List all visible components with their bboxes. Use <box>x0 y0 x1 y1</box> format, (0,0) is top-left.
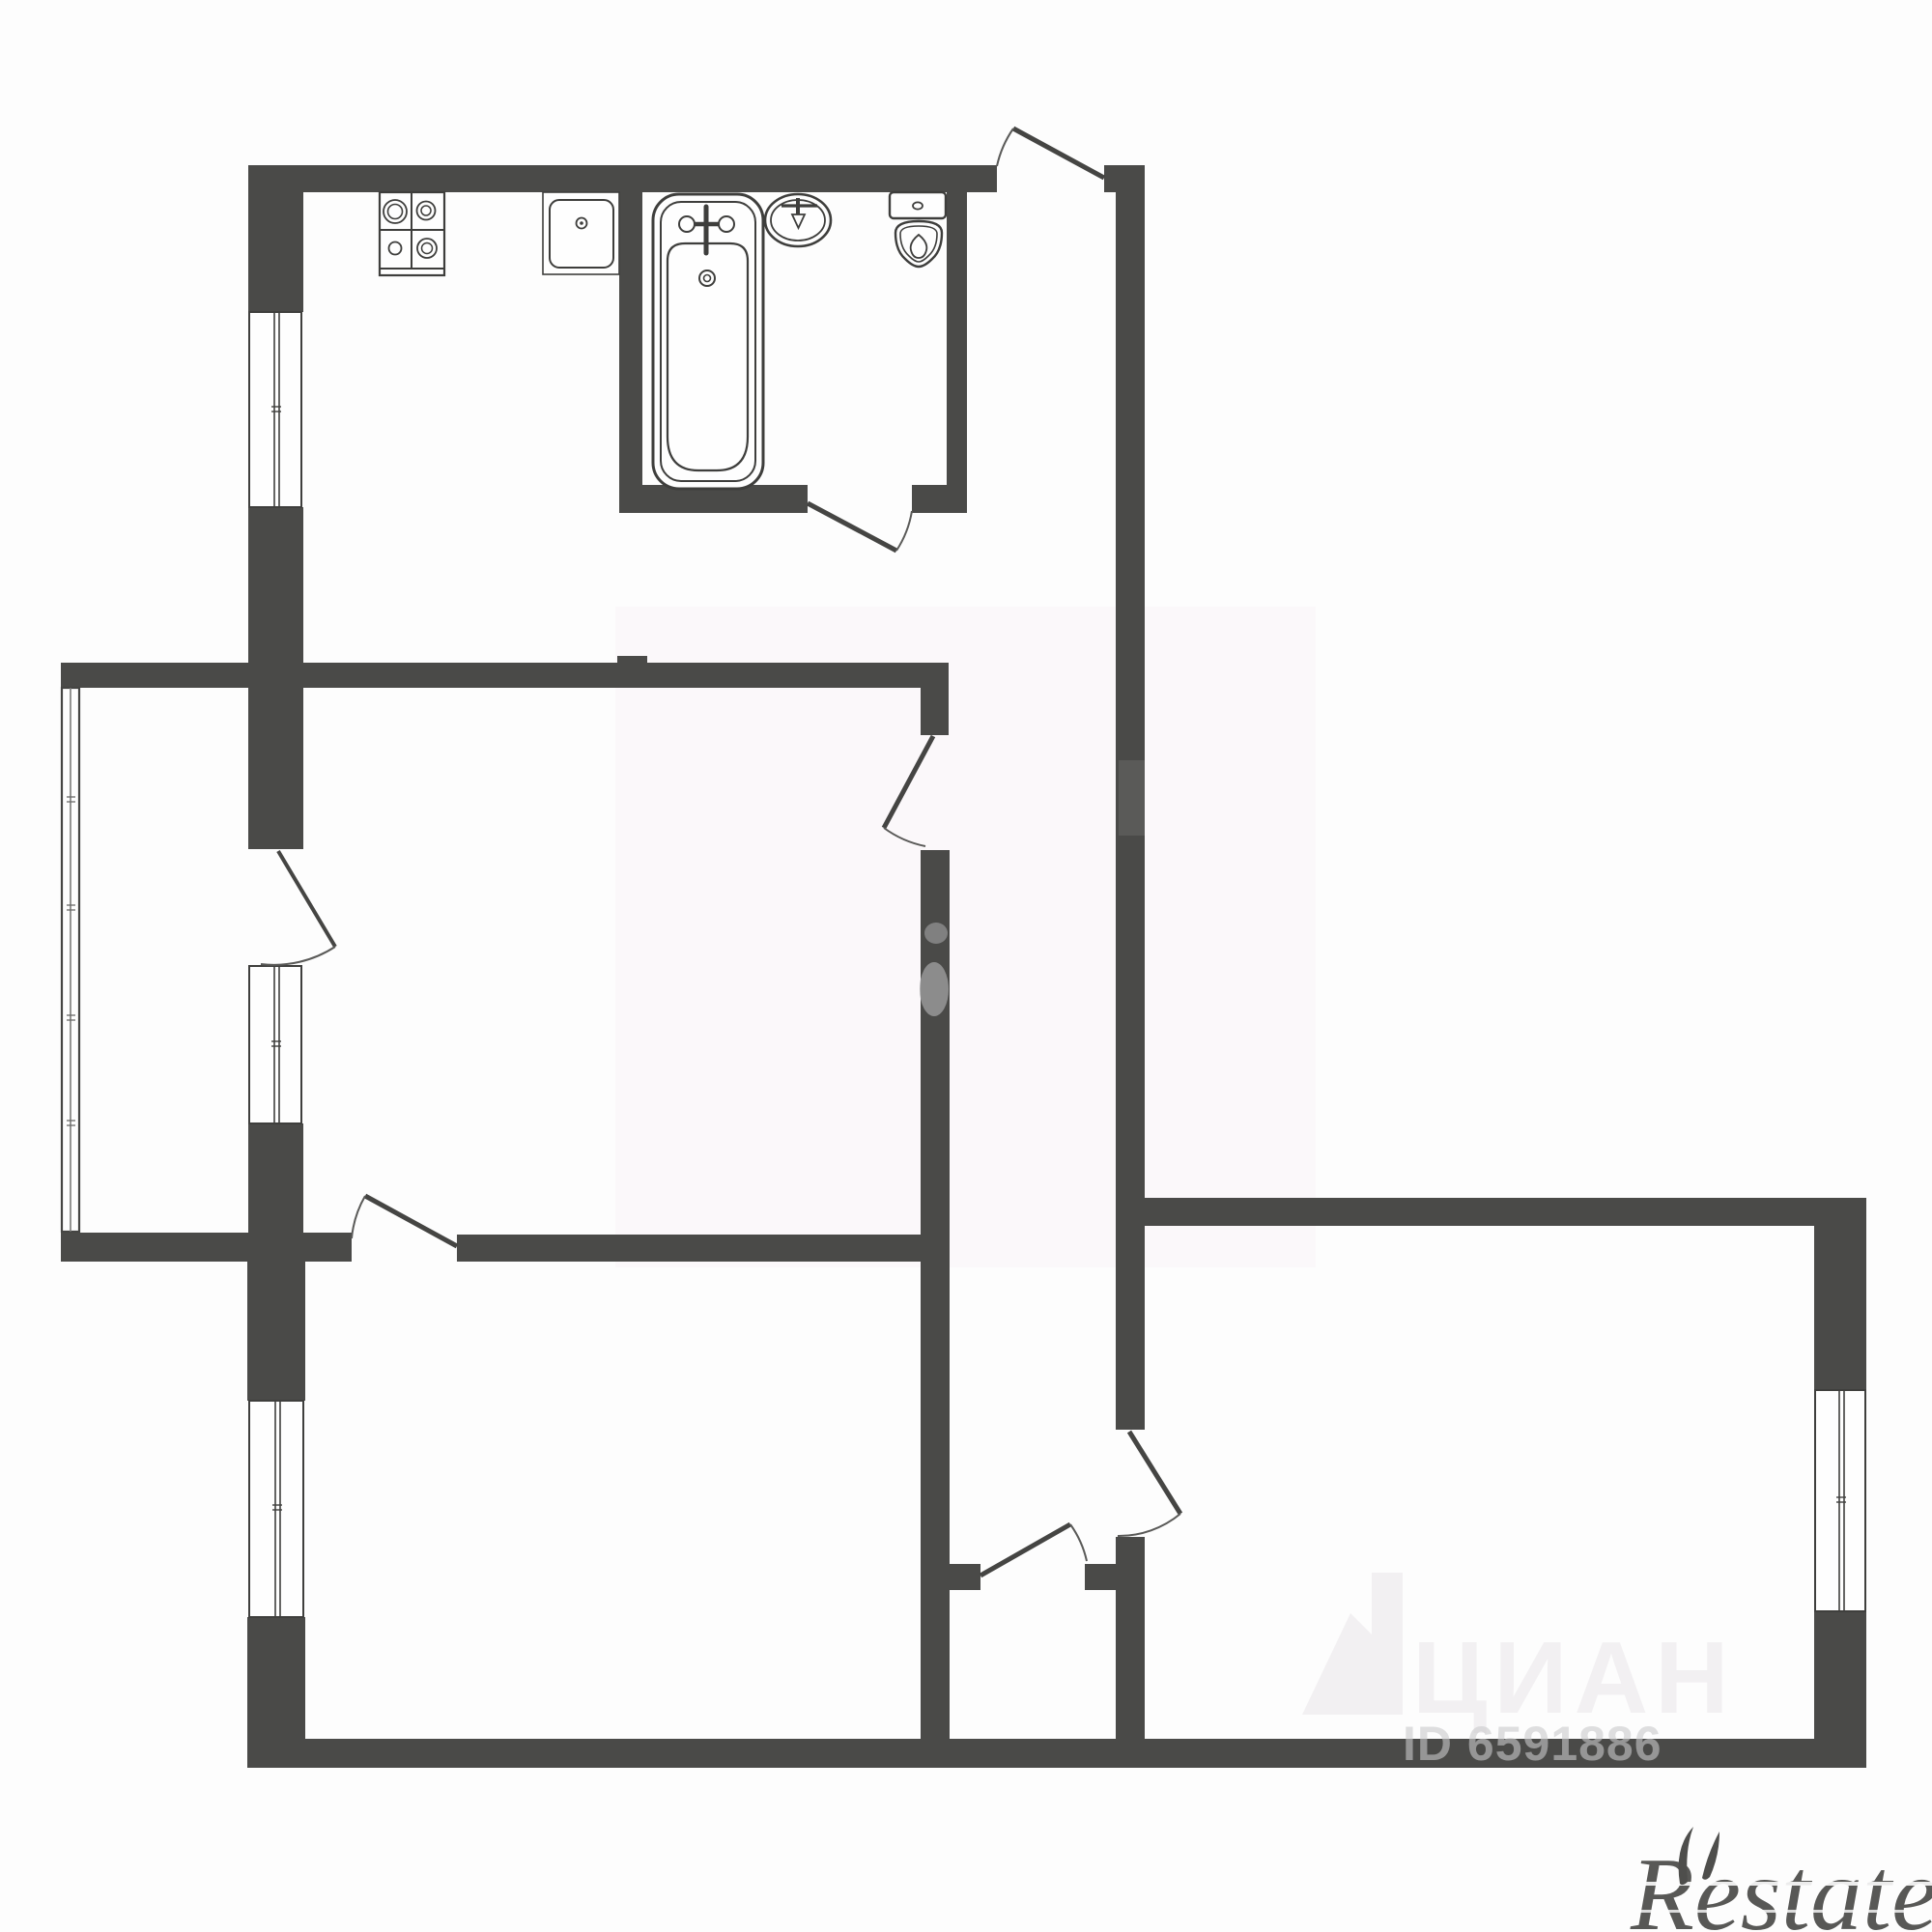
svg-text:ID 6591886: ID 6591886 <box>1403 1717 1662 1771</box>
